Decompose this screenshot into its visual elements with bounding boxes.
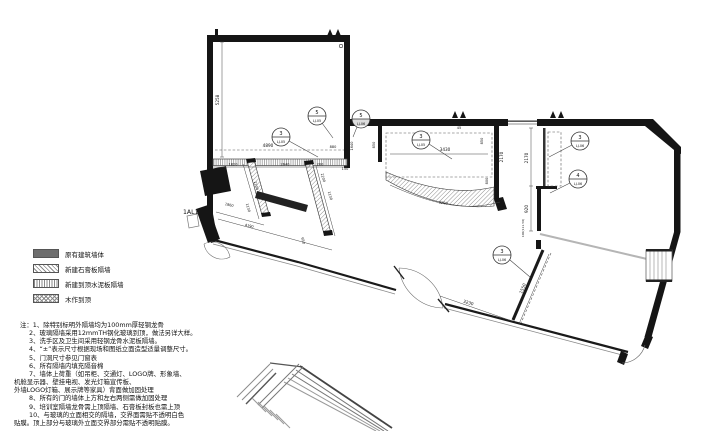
floor-plan-sheet: 5258 4890 1820 2640 400 200 150 880 1640…: [0, 0, 720, 431]
note-line: 5、门洞尺寸参见门窗表: [29, 354, 197, 362]
dim-text: 880: [330, 145, 337, 149]
legend: 原有建筑墙体 新建石膏板隔墙 新建到顶水泥板隔墙 木作到顶: [33, 249, 124, 309]
svg-text:LJ-05: LJ-05: [313, 119, 321, 123]
svg-text:3: 3: [500, 249, 503, 255]
dim-text: 850: [480, 138, 484, 145]
legend-swatch-diagonal-hatch: [33, 264, 59, 273]
door-jamb-block: [641, 334, 653, 349]
right-partition-stub: [536, 186, 557, 189]
door-frame-box: [187, 214, 199, 228]
note-line: 7、墙体上荷重（如吊柜、交通灯、LOGO牌、形象墙、: [29, 370, 197, 378]
dim-text: 2170: [499, 151, 504, 162]
column-block: [200, 166, 231, 196]
wall-right-lower-angled: [645, 232, 681, 339]
note-line-continuation: 贴膜。顶上部分与玻璃外立面交界部分需贴不透明贴膜。: [14, 419, 197, 427]
legend-label: 新建到顶水泥板隔墙: [65, 279, 124, 289]
dim-text: 850: [372, 142, 376, 149]
legend-item-woodwork: 木作到顶: [33, 294, 124, 303]
angled-partition: [513, 250, 543, 320]
window-opening-top: [508, 121, 537, 122]
small-circle-symbol: [339, 44, 342, 47]
legend-label: 原有建筑墙体: [65, 249, 104, 259]
detail-callout: 3 LJ-05: [412, 131, 452, 159]
right-partition: [543, 128, 546, 188]
dim-text: 150: [342, 167, 349, 171]
dim-text: 3230: [463, 299, 475, 307]
storefront-thin-line-left: [213, 244, 395, 294]
section-marker-triangle: [460, 111, 466, 118]
dim-text: 1130: [245, 203, 251, 213]
svg-text:LJ-05: LJ-05: [417, 143, 425, 147]
storefront-glazing: [213, 240, 628, 356]
svg-text:LJ-05: LJ-05: [277, 140, 285, 144]
section-marker-triangle: [550, 111, 556, 118]
svg-text:4: 4: [576, 173, 579, 179]
general-notes: 注：1、除特别标明外隔墙均为100mm厚轻钢龙骨 2、玻璃隔墙采用12mmTH钢…: [20, 321, 197, 427]
wall-top-main-a: [350, 119, 508, 126]
wall-top-main-b: [537, 119, 645, 126]
adjacent-drawing-fragment: [237, 363, 392, 431]
svg-text:5: 5: [315, 110, 318, 116]
storefront-dark-line-left: [214, 240, 396, 290]
door-swing-arc: [204, 244, 230, 259]
window-opening-top-line: [508, 124, 537, 125]
dim-text: 4190: [244, 223, 254, 229]
svg-text:LJ-06: LJ-06: [498, 258, 506, 262]
legend-item-gypsum-partition: 新建石膏板隔墙: [33, 264, 124, 273]
legend-swatch-line-hatch: [33, 279, 59, 288]
svg-text:3: 3: [419, 134, 422, 140]
section-marker-triangle: [327, 29, 333, 36]
dim-text: 1130: [327, 191, 333, 201]
gray-reference-line: [540, 234, 647, 259]
section-marker-triangle: [335, 29, 341, 36]
dim-text: 1860: [224, 202, 234, 208]
dim-text: 650: [300, 237, 306, 245]
storefront-dark-line-right: [445, 304, 628, 352]
middle-room-left-wall: [378, 126, 382, 162]
dim-text: 400: [304, 163, 311, 167]
svg-text:5: 5: [359, 113, 362, 119]
legend-label: 木作到顶: [65, 294, 91, 304]
partition-end-cap: [323, 230, 333, 236]
section-marker-triangle: [558, 111, 564, 118]
legend-label: 新建石膏板隔墙: [65, 264, 111, 274]
note-line: 9、培训室隔墙龙骨需上顶隔墙、石膏板封板也需上顶: [29, 403, 197, 411]
detail-callout: 3 LJ-05: [272, 128, 318, 157]
dim-text: 920: [524, 205, 529, 213]
dim-text: 2170: [524, 152, 529, 163]
detail-callout: 4 LJ-06: [550, 170, 587, 193]
dim-text: 200: [317, 163, 324, 167]
note-line: 4、“±”表示尺寸根据现场和图纸立面造型适量调整尺寸。: [29, 345, 197, 353]
svg-text:LJ-06: LJ-06: [574, 182, 582, 186]
dim-text: 800: [485, 178, 489, 185]
exterior-walls: [200, 29, 681, 339]
detail-callout: 3 LJ-06: [493, 246, 530, 277]
dim-text: 2200: [320, 173, 326, 183]
svg-text:3: 3: [578, 135, 581, 141]
dim-text: 2640: [281, 163, 290, 167]
legend-item-cement-board-partition: 新建到顶水泥板隔墙: [33, 279, 124, 288]
dim-text: 4890: [263, 143, 274, 148]
wall-room1-top: [207, 35, 350, 42]
new-partitions: [213, 122, 557, 320]
storefront-thin-line-right: [444, 308, 626, 356]
note-line: 注：1、除特别标明外隔墙均为100mm厚轻钢龙骨: [20, 321, 197, 329]
detail-callout: 5 LJ-05: [308, 107, 333, 138]
note-line: 10、与玻璃的立面相交的隔墙，交界面需贴不透明白色: [29, 411, 197, 419]
svg-text:LJ-06: LJ-06: [576, 144, 584, 148]
grid-label-1al1: 1AL1: [183, 209, 199, 216]
small-wall-block: [536, 240, 541, 249]
svg-text:LJ-06: LJ-06: [357, 122, 365, 126]
detail-callout: 5 LJ-06: [352, 110, 370, 137]
wall-stub: [494, 197, 507, 211]
legend-item-existing-wall: 原有建筑墙体: [33, 249, 124, 258]
dim-text: 5258: [215, 94, 220, 105]
note-line: 8、所有的门的墙体上方和左右两侧需做加固处理: [29, 394, 197, 402]
door-wall-bar-left: [196, 205, 220, 243]
wall-chamfer-corner: [645, 119, 681, 154]
detail-callout: 3 LJ-06: [549, 132, 589, 157]
dim-text: 1820: [229, 163, 238, 167]
legend-swatch-cross-hatch: [33, 294, 59, 303]
dim-text: 3200: [438, 200, 447, 205]
louver-window: [646, 249, 672, 282]
dim-text: 3430: [440, 147, 451, 152]
dim-text: 1640: [350, 142, 354, 151]
svg-text:3: 3: [279, 131, 282, 137]
right-partition-bar: [537, 189, 541, 231]
dim-text: 45: [457, 126, 461, 130]
wall-tick-topleft: [215, 29, 218, 35]
notes-prefix: 注：: [20, 321, 33, 329]
section-marker-triangle: [452, 111, 458, 118]
legend-swatch-solid: [33, 249, 59, 258]
note-text: 1、除特别标明外隔墙均为100mm厚轻钢龙骨: [33, 321, 164, 329]
note-line: 6、所有隔墙内填充隔音棉: [29, 362, 197, 370]
wall-right: [674, 149, 681, 232]
dim-text: 100(111.50): [521, 219, 525, 238]
